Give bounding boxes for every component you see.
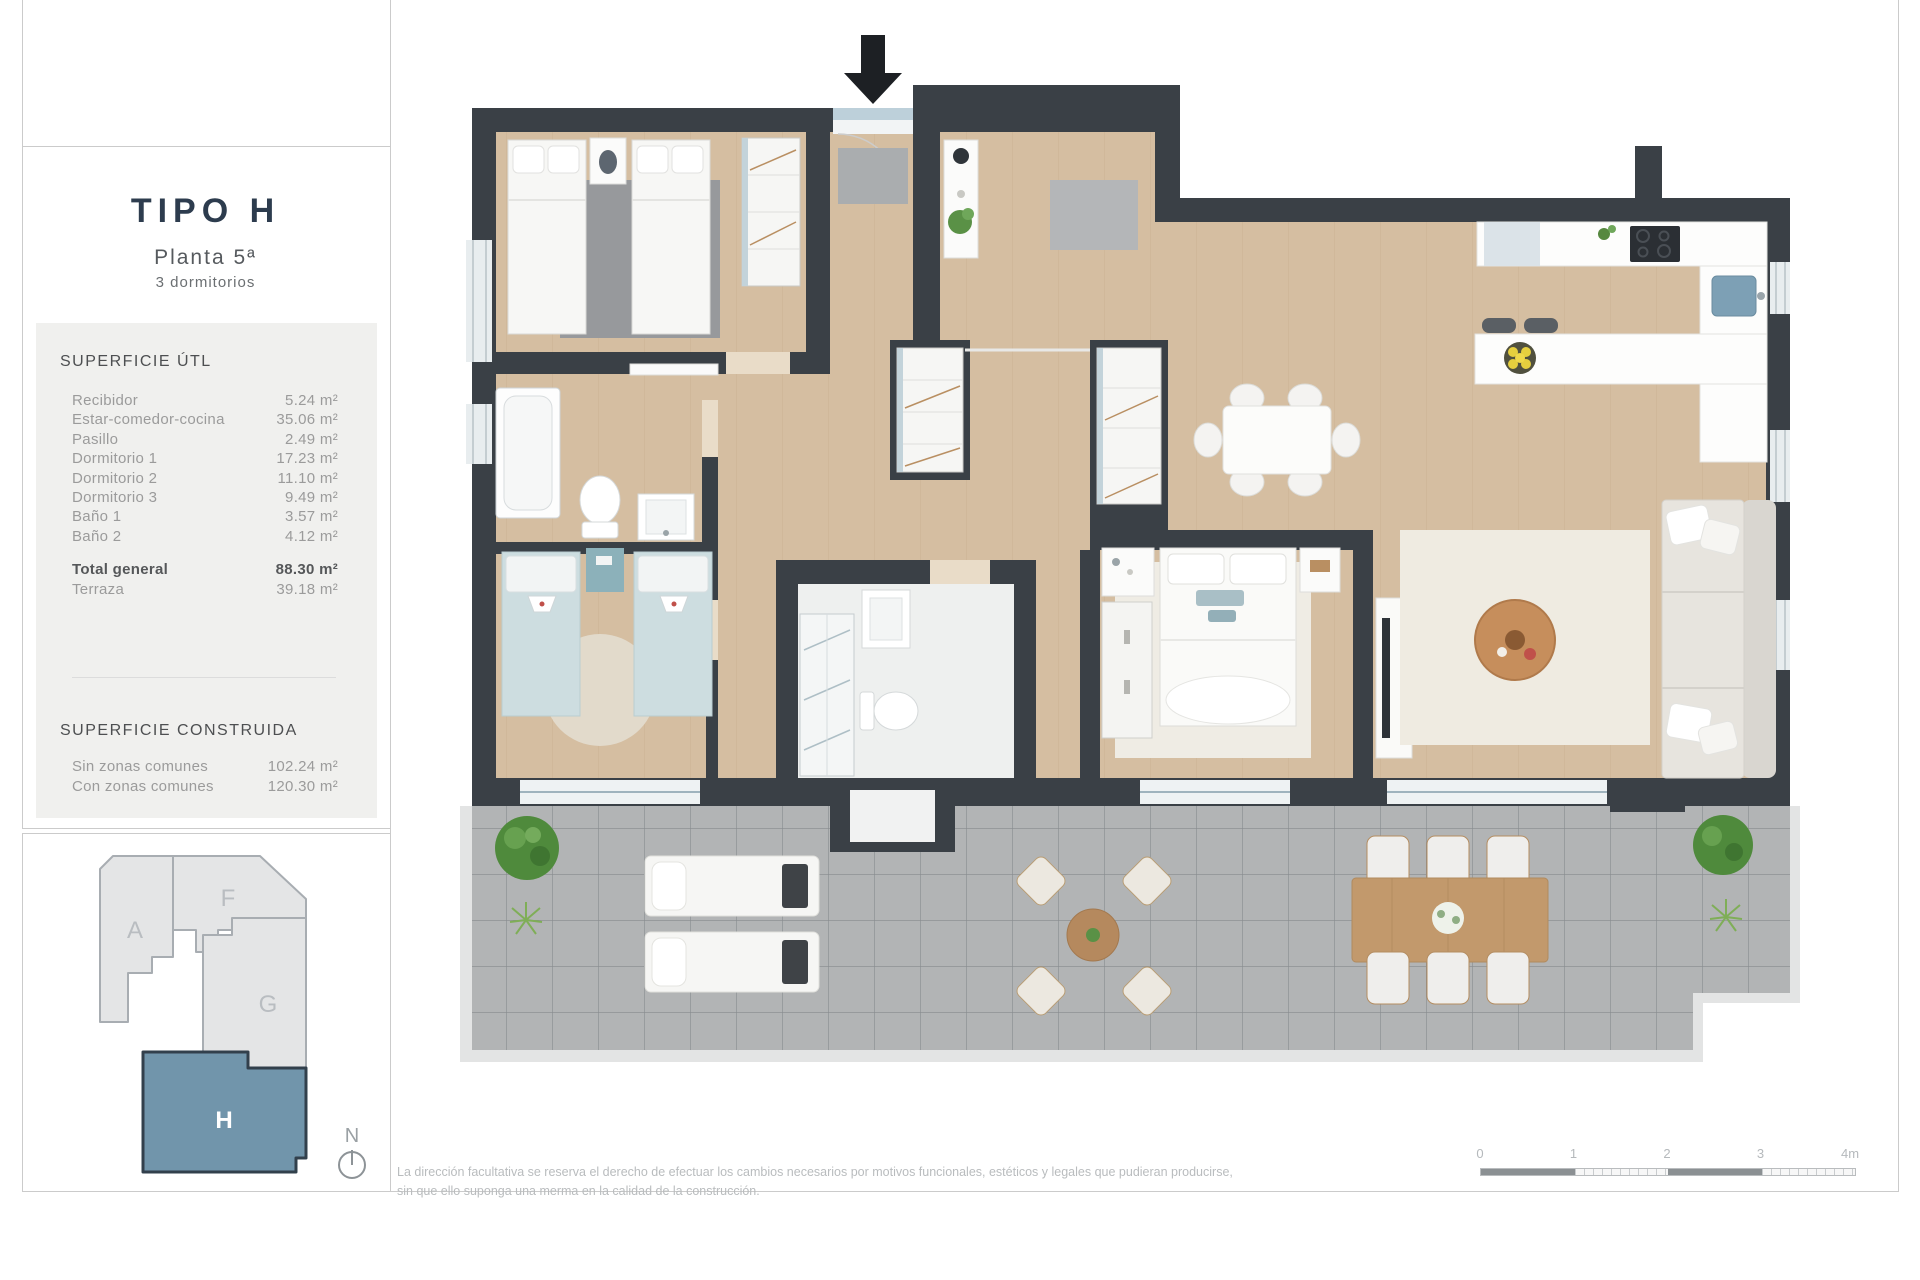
bedroom3-wardrobe (742, 138, 800, 286)
room-bedroom2 (502, 548, 712, 746)
surface-row: Sin zonas comunes102.24 m² (72, 757, 338, 777)
door-bath2 (930, 560, 990, 584)
terrace-row: Terraza39.18 m² (72, 580, 338, 600)
surface-row: Dormitorio 117.23 m² (72, 449, 338, 468)
bath1-toilet (580, 476, 620, 538)
disclaimer-line-2: sin que ello suponga una merma en la cal… (397, 1182, 1297, 1201)
hall-console (944, 140, 978, 258)
window-left-bedroom3 (466, 240, 492, 362)
bath2-shower (800, 614, 854, 776)
room-living (1400, 500, 1776, 778)
sun-lounger-2 (645, 932, 819, 992)
entry-door-sill (833, 108, 913, 120)
bedroom1-wardrobe (1102, 602, 1152, 738)
bedroom1-vanity (1102, 548, 1154, 596)
keyplan-label-a: A (127, 917, 143, 944)
surface-row: Recibidor5.24 m² (72, 391, 338, 410)
fruit-bowl (1504, 342, 1536, 374)
hall-wardrobe-left (897, 348, 963, 472)
floorplan-page: { "sidebar": { "title": "TIPO H", "floor… (0, 0, 1920, 1280)
window-right-kitchen (1770, 262, 1790, 314)
entry-arrow-icon (844, 35, 902, 104)
sun-lounger-1 (645, 856, 819, 916)
total-row: Total general88.30 m² (72, 560, 338, 580)
scale-bar-segments (1480, 1168, 1856, 1176)
bedroom1-bed (1160, 548, 1296, 726)
room-bedroom1 (1102, 548, 1340, 758)
superficie-construida-rows: Sin zonas comunes102.24 m² Con zonas com… (72, 757, 338, 797)
floorplan-drawing (391, 0, 1897, 1189)
scale-label-2: 2 (1663, 1146, 1670, 1161)
hall-wardrobe-right (1097, 348, 1161, 504)
bath2-toilet (860, 692, 918, 730)
glass-door-bedroom2 (520, 780, 700, 804)
surface-row: Estar-comedor-cocina35.06 m² (72, 410, 338, 429)
bar-stool (1482, 318, 1516, 333)
dining-chair (1332, 423, 1360, 457)
laundry-bump-glass (850, 790, 935, 842)
bedroom1-nightstand (1300, 548, 1340, 592)
window-left-bath1 (466, 404, 492, 464)
bedroom2-bed-left (502, 552, 580, 716)
sidebar-logo-box (22, 0, 391, 148)
surface-row: Baño 24.12 m² (72, 527, 338, 546)
floor-label: Planta 5ª (22, 246, 389, 270)
dining-chair (1194, 423, 1222, 457)
keyplan-label-h: H (215, 1107, 232, 1134)
panel-divider (72, 677, 336, 678)
scale-label-1: 1 (1570, 1146, 1577, 1161)
scale-label-0: 0 (1476, 1146, 1483, 1161)
disclaimer-line-1: La dirección facultativa se reserva el d… (397, 1163, 1297, 1182)
bath1-bathtub (496, 388, 560, 518)
kitchen-hob (1630, 226, 1680, 262)
terrace-bush-left (495, 816, 559, 880)
bedroom3-shelf (630, 364, 718, 375)
door-bedroom3 (726, 352, 790, 374)
building-keyplan: A F G H N (22, 833, 389, 1190)
surface-row: Pasillo2.49 m² (72, 430, 338, 449)
surface-row: Dormitorio 211.10 m² (72, 469, 338, 488)
kitchen-fridge (1484, 222, 1540, 266)
north-compass-icon: N (339, 1125, 365, 1178)
terrace-bush-right (1693, 815, 1753, 875)
disclaimer-text: La dirección facultativa se reserva el d… (397, 1163, 1297, 1201)
superficie-util-rows: Recibidor5.24 m² Estar-comedor-cocina35.… (72, 391, 338, 546)
bar-stool (1524, 318, 1558, 333)
keyplan-label-f: F (221, 885, 236, 912)
superficie-util-heading: SUPERFICIE ÚTL (60, 353, 212, 371)
surface-row: Baño 13.57 m² (72, 507, 338, 526)
dining-table (1223, 406, 1331, 474)
sofa (1662, 500, 1776, 778)
surface-totals: Total general88.30 m² Terraza39.18 m² (72, 560, 338, 600)
bedroom3-bed-right (632, 140, 710, 334)
scale-segment (1668, 1169, 1762, 1175)
bedroom3-nightstand (590, 138, 626, 184)
bedroom2-headboard (586, 548, 624, 592)
bath1-sink (638, 494, 694, 540)
terrace-dining-set (1352, 836, 1548, 1004)
hall-rug (1050, 180, 1138, 250)
bedroom2-bed-right (634, 552, 712, 716)
scale-bar: 0 1 2 3 4m (1480, 1146, 1856, 1186)
terrace-tiles (472, 806, 1790, 1050)
door-bath1 (702, 400, 718, 457)
surface-row: Con zonas comunes120.30 m² (72, 777, 338, 797)
glass-door-bedroom1 (1140, 780, 1290, 804)
scale-segment (1481, 1169, 1575, 1175)
scale-label-3: 3 (1757, 1146, 1764, 1161)
bedrooms-label: 3 dormitorios (22, 274, 389, 291)
scale-segment (1575, 1169, 1669, 1175)
keyplan-block-g-shape (203, 918, 306, 1068)
glass-door-living (1387, 780, 1607, 804)
keyplan-label-g: G (259, 991, 278, 1018)
entry-doormat (838, 148, 908, 204)
page-title: TIPO H (22, 192, 389, 231)
entry-door-threshold (833, 120, 913, 134)
north-letter: N (345, 1125, 359, 1147)
coffee-table (1475, 600, 1555, 680)
bath2-sink (862, 590, 910, 648)
scale-segment (1762, 1169, 1856, 1175)
window-right-living-1 (1770, 430, 1790, 502)
scale-label-4m: 4m (1841, 1146, 1859, 1161)
surface-row: Dormitorio 39.49 m² (72, 488, 338, 507)
tv-icon (1382, 618, 1390, 738)
superficie-construida-heading: SUPERFICIE CONSTRUIDA (60, 722, 298, 740)
bedroom3-bed-left (508, 140, 586, 334)
